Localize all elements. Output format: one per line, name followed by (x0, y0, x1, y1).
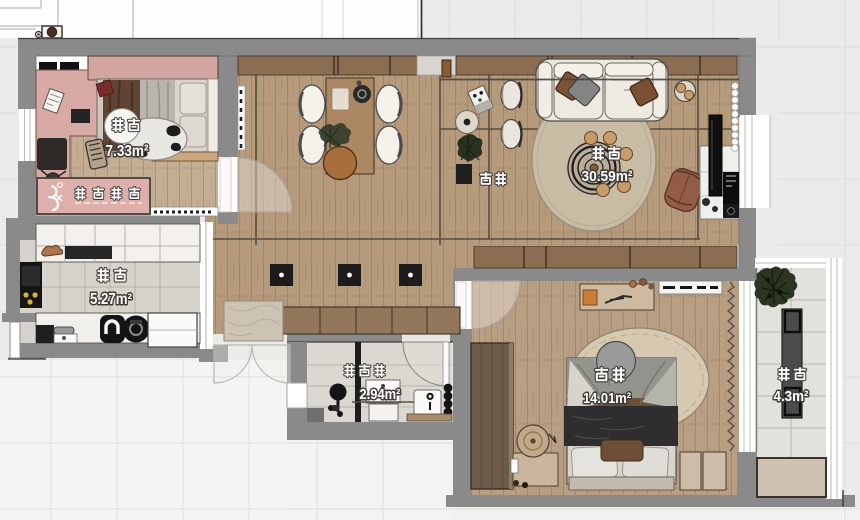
svg-text:14.01m²: 14.01m² (583, 390, 631, 407)
svg-text:30.59m²: 30.59m² (582, 168, 633, 185)
svg-text:7.33m²: 7.33m² (106, 143, 149, 160)
svg-text:4.3m²: 4.3m² (774, 388, 809, 405)
svg-text:2.94m²: 2.94m² (360, 387, 401, 403)
svg-text:5.27m²: 5.27m² (90, 291, 132, 308)
